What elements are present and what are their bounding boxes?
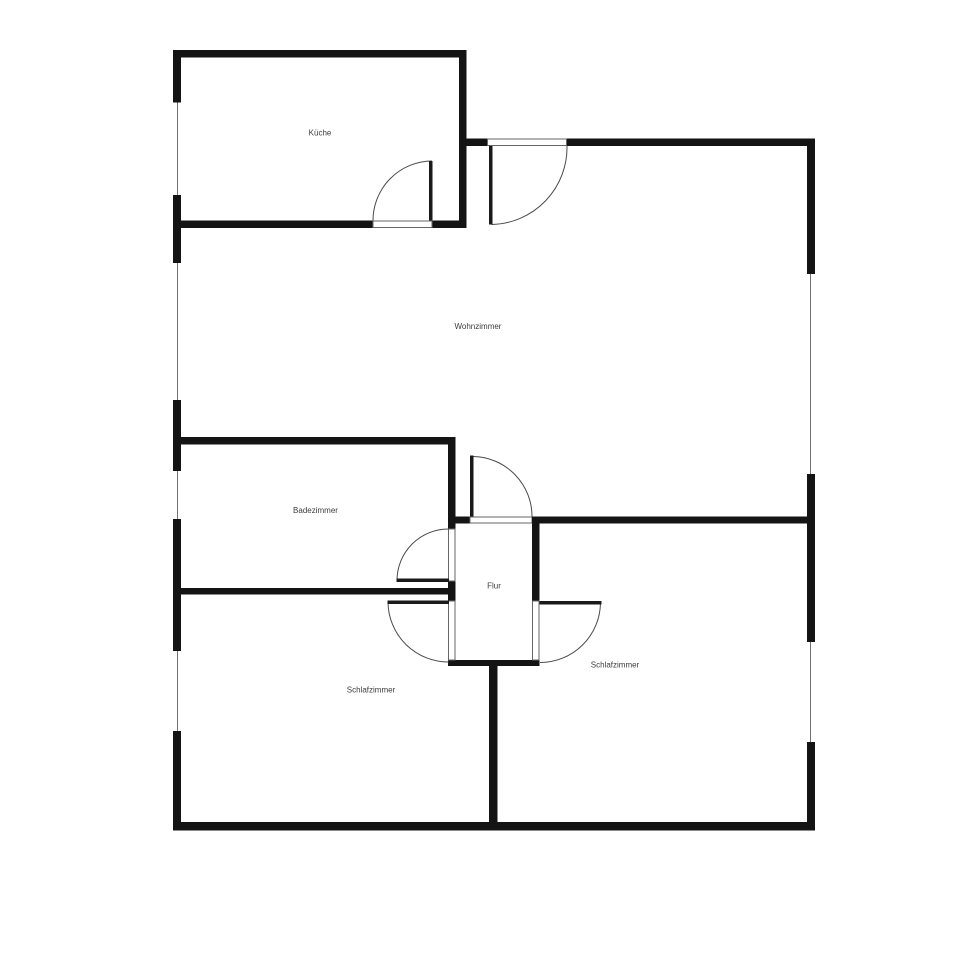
svg-text:Wohnzimmer: Wohnzimmer xyxy=(455,322,502,331)
svg-text:Schlafzimmer: Schlafzimmer xyxy=(347,685,396,694)
svg-text:Küche: Küche xyxy=(309,129,332,138)
svg-text:Badezimmer: Badezimmer xyxy=(293,506,338,515)
svg-text:Flur: Flur xyxy=(487,582,501,591)
svg-text:Schlafzimmer: Schlafzimmer xyxy=(591,660,640,669)
